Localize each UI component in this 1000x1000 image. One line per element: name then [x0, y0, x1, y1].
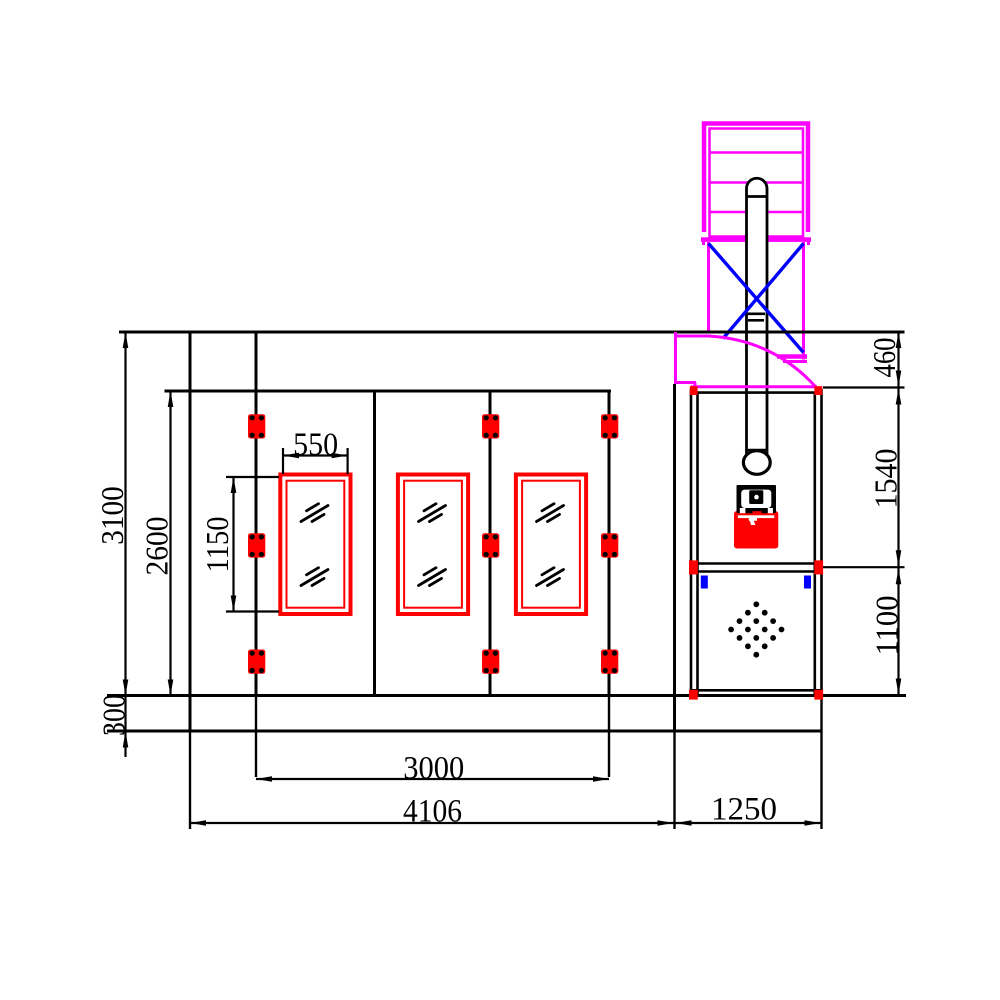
- svg-text:3100: 3100: [94, 486, 130, 545]
- svg-text:460: 460: [866, 338, 902, 378]
- svg-text:1540: 1540: [868, 449, 904, 509]
- svg-text:550: 550: [293, 427, 338, 463]
- svg-text:300: 300: [96, 694, 132, 736]
- svg-text:2600: 2600: [139, 517, 175, 576]
- svg-text:4106: 4106: [403, 793, 462, 829]
- svg-text:1100: 1100: [869, 596, 905, 656]
- svg-text:1150: 1150: [199, 517, 235, 573]
- svg-text:3000: 3000: [403, 750, 464, 786]
- svg-text:1250: 1250: [711, 792, 777, 828]
